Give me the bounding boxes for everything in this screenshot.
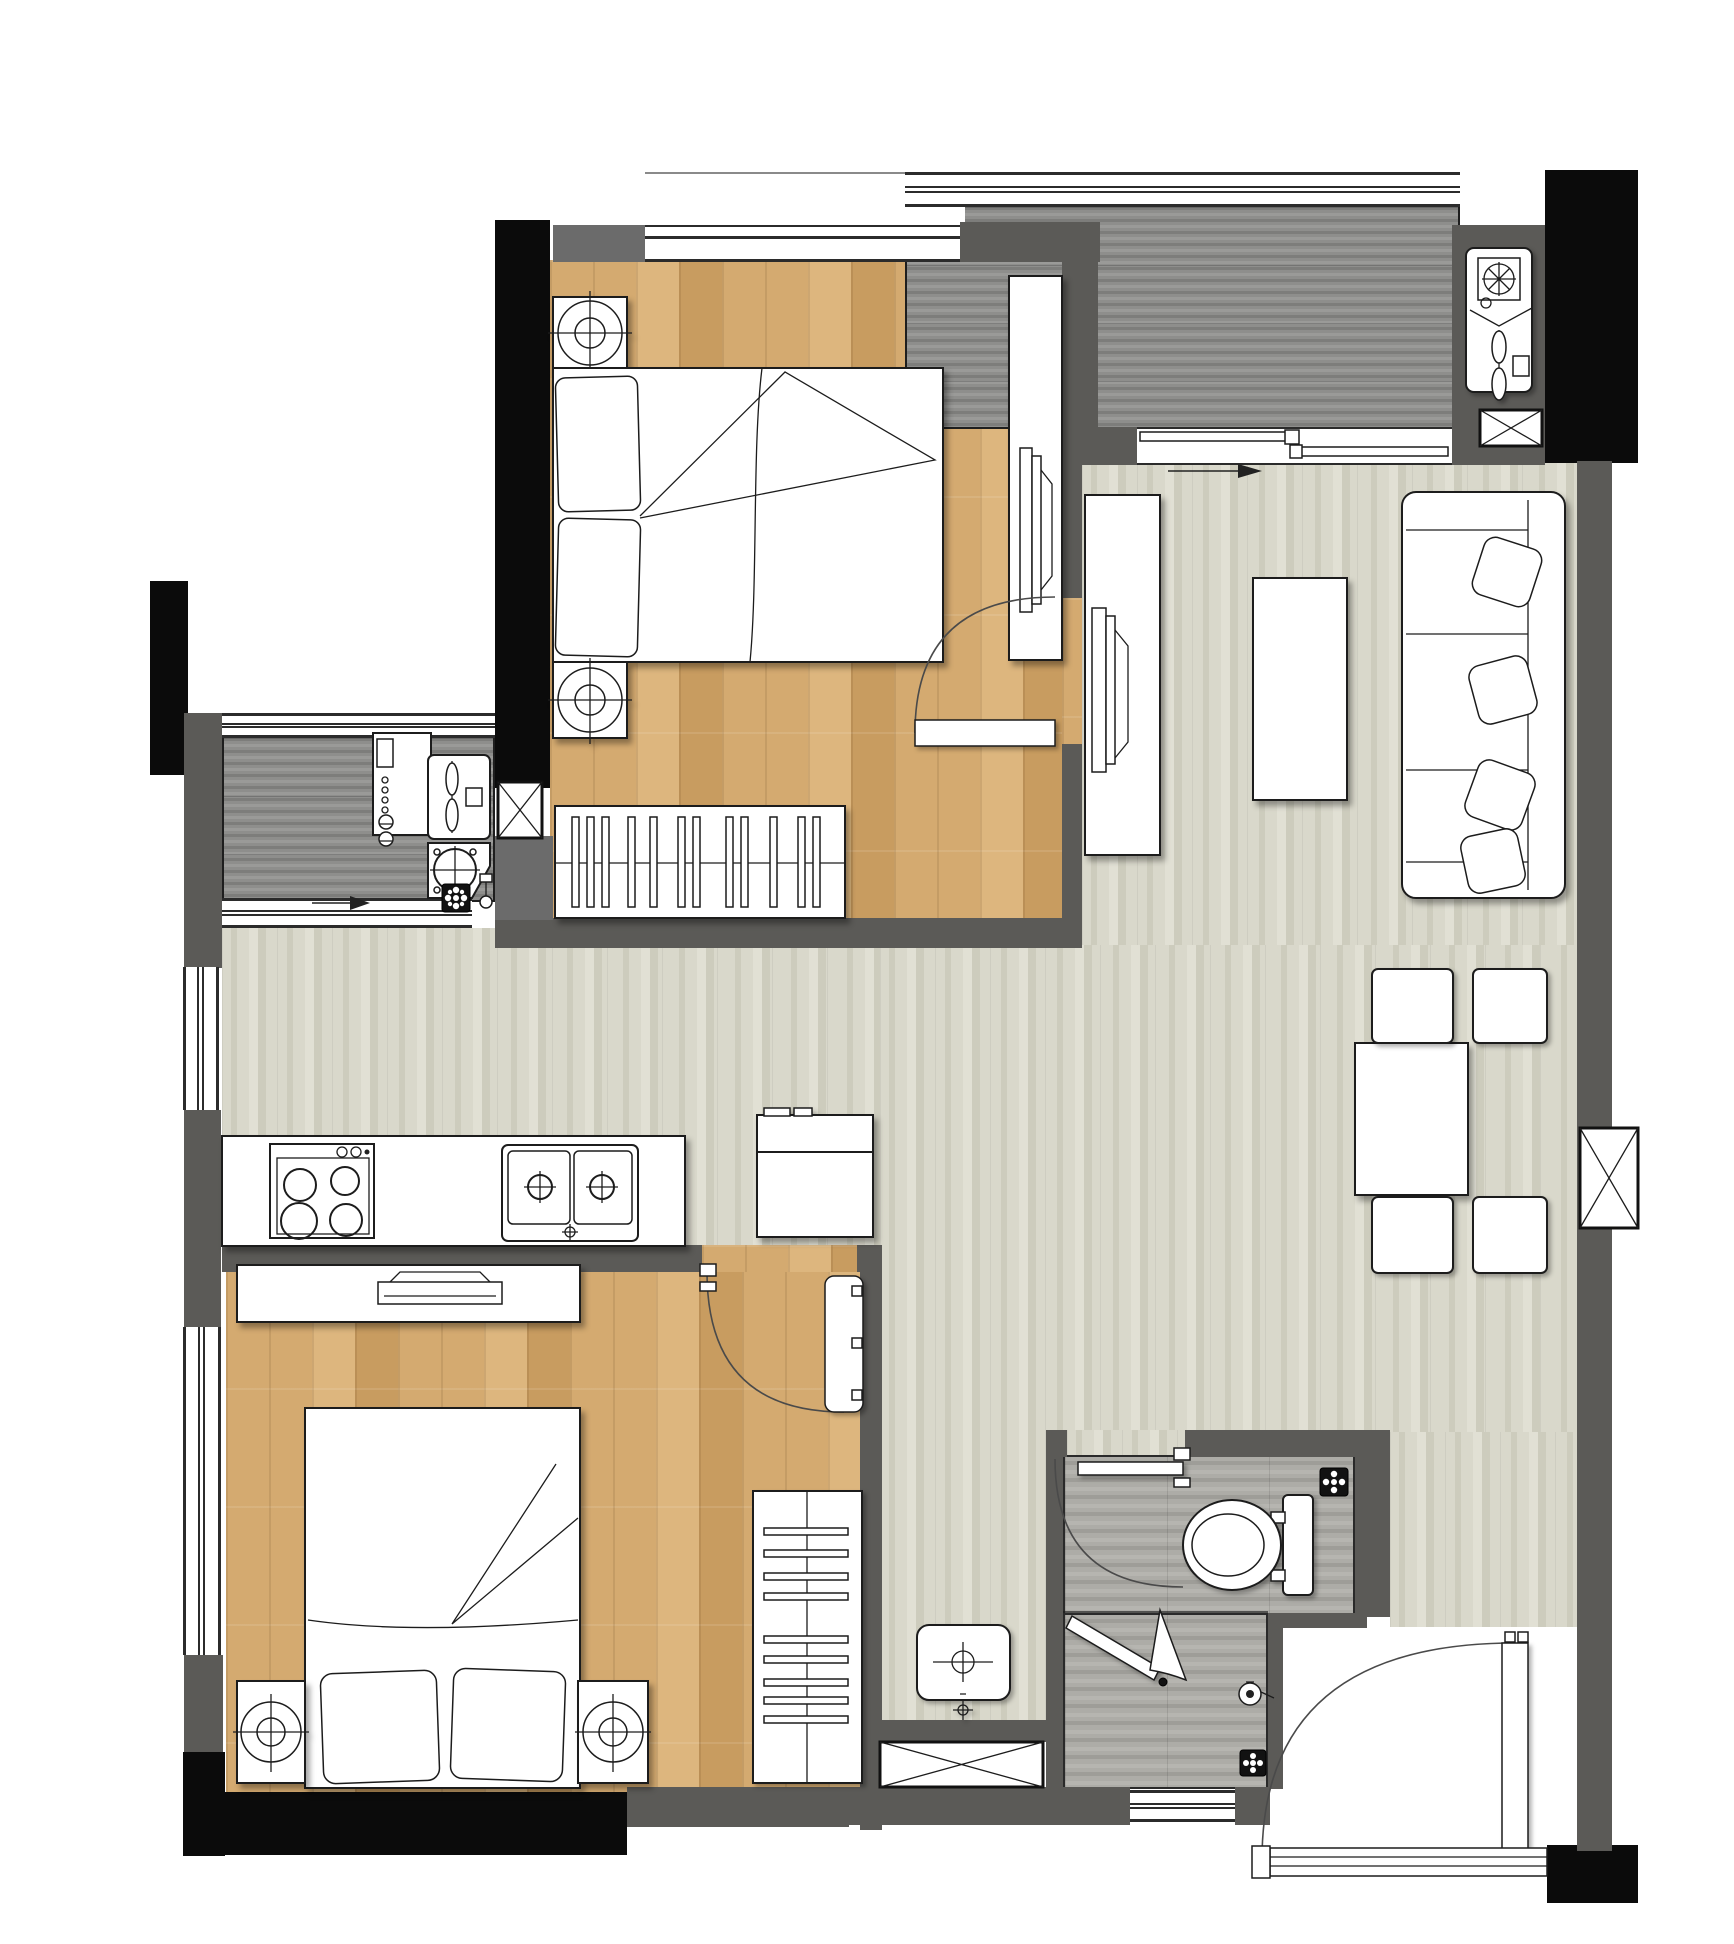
bedroom2-wardrobe <box>753 1491 862 1783</box>
bedroom1-bed <box>553 368 943 662</box>
balcony-left-arrow <box>312 896 370 910</box>
dining-table <box>1355 1043 1468 1195</box>
wash-basin <box>917 1625 1010 1720</box>
bedroom2-dresser <box>237 1265 580 1322</box>
cooktop-4burner <box>270 1144 374 1239</box>
sliding-panels <box>1140 430 1448 458</box>
bathroom-drain-bottom <box>1240 1750 1266 1776</box>
floor-plan <box>0 0 1734 1944</box>
furniture-layer <box>0 0 1734 1944</box>
refrigerator <box>757 1108 873 1237</box>
bedroom1-nightstand-top <box>548 291 632 375</box>
bedroom1-wardrobe <box>555 806 845 918</box>
door-leaf <box>915 720 1055 746</box>
toilet <box>1183 1495 1313 1595</box>
pillow <box>555 376 640 512</box>
entry-door <box>1262 1632 1528 1860</box>
entry-threshold <box>1252 1846 1547 1878</box>
bedroom2-bed <box>305 1408 580 1788</box>
bedroom2-nightstand-left <box>233 1681 309 1783</box>
door-leaf <box>1502 1643 1528 1860</box>
storage-hatch <box>880 1742 1043 1787</box>
pillow <box>555 518 641 657</box>
right-wall-vent-hatch <box>1580 1128 1638 1228</box>
bedroom1-side-console <box>1009 276 1062 660</box>
washing-machine <box>373 733 431 846</box>
bedroom2-nightstand-right <box>575 1681 651 1783</box>
bedroom1-vent-hatch <box>498 782 542 838</box>
door-leaf <box>1078 1462 1183 1475</box>
floor-drain <box>442 884 470 912</box>
shower-screen <box>1063 1610 1268 1686</box>
bedroom2-door <box>700 1264 863 1412</box>
pillow <box>450 1668 566 1782</box>
faucet-icon <box>480 874 492 908</box>
coffee-table <box>1253 578 1347 800</box>
living-tv-console <box>1085 495 1160 855</box>
slide-direction-arrow <box>1168 464 1262 478</box>
bathroom-door <box>1055 1448 1190 1587</box>
cushion <box>1459 827 1528 896</box>
bathroom-drain-top <box>1320 1468 1348 1496</box>
balcony-ac-panel <box>1466 248 1532 400</box>
hand-shower <box>1239 1682 1274 1705</box>
ac-outdoor-unit <box>428 755 490 839</box>
kitchen-sink-double <box>502 1145 638 1241</box>
sofa <box>1402 492 1565 898</box>
bedroom1-nightstand-bottom <box>548 658 632 744</box>
balcony-vent-hatch <box>1480 410 1542 446</box>
pillow <box>320 1670 440 1784</box>
